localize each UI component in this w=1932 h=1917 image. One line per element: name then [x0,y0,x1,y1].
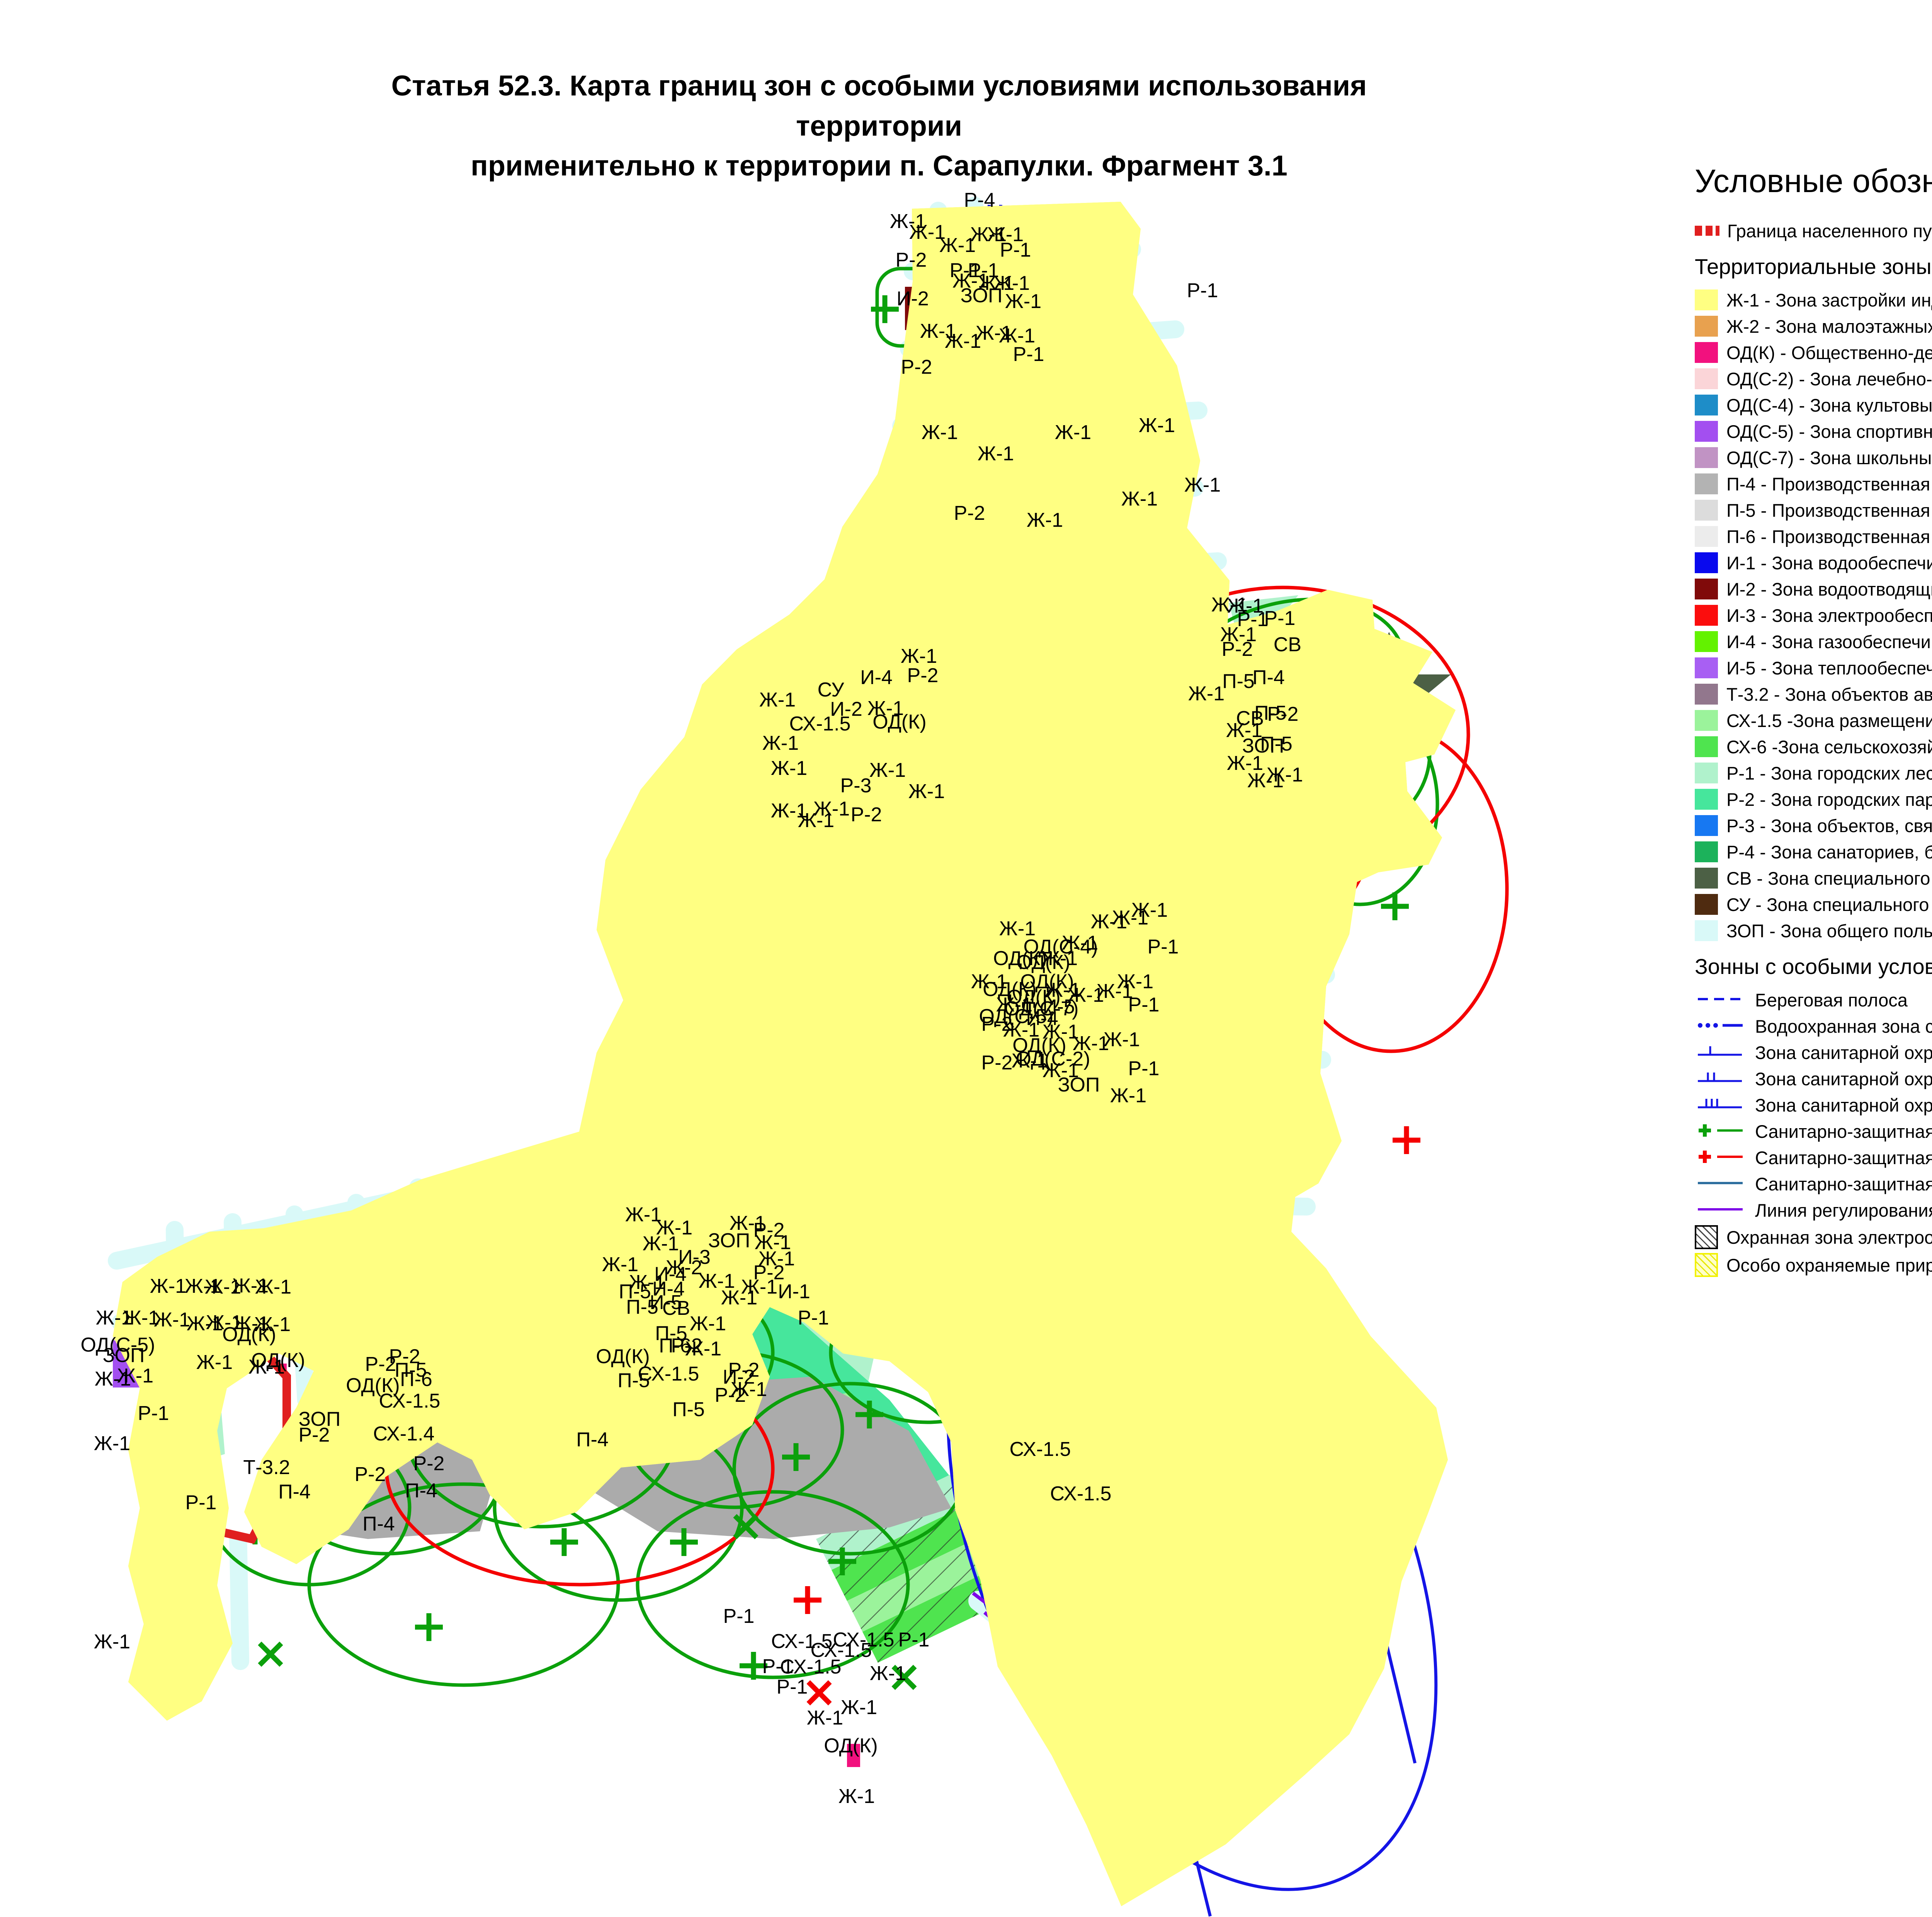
legend-item-label: Линия регулирования застройки [1755,1200,1932,1221]
legend-item-zone-СХ-1.5: СХ-1.5 -Зона размещения сельскохозяйстве… [1695,707,1932,734]
map-zone-label: Ж-1 [1247,770,1284,792]
legend-item-label: П-5 - Производственная зона V класса опа… [1726,500,1932,521]
map-zone-label: Ж-1 [690,1313,726,1335]
legend-item-special-line: Линия регулирования застройки [1695,1197,1932,1223]
map-zone-label: Ж-1 [94,1432,130,1455]
zone-color-swatch [1695,868,1718,889]
legend-item-zone-П-4: П-4 - Производственная зона IV класса оп… [1695,471,1932,497]
legend-item-label: ОД(С-7) - Зона школьных, дошкольных учеб… [1726,447,1932,468]
legend-special-line-list: Береговая полосаВодоохранная зона совмещ… [1695,987,1932,1223]
map-zone-label: СХ-1.5 [379,1390,440,1412]
legend-item-zone-Р-3: Р-3 - Зона объектов, связанных с использ… [1695,812,1932,839]
line-style-swatch [1695,1200,1753,1220]
line-style-swatch [1695,1069,1753,1089]
legend-item-zone-И-5: И-5 - Зона теплообеспечивающих объектов … [1695,655,1932,681]
line-style-swatch [1695,1174,1753,1194]
map-zone-label: П-5 [617,1369,650,1392]
map-zone-label: П-5 [1260,733,1293,755]
map-zone-label: Ж-1 [759,689,796,711]
legend-item-label: Р-3 - Зона объектов, связанных с использ… [1726,815,1932,836]
map-zone-label: ЗОП [103,1344,145,1367]
zone-color-swatch [1695,447,1718,468]
legend-item-label: ОД(С-5) - Зона спортивных комплексов [1726,421,1932,442]
legend-item-zone-Ж-2: Ж-2 - Зона малоэтажных многоквартирных ж… [1695,313,1932,339]
legend-item-special-line: Береговая полоса [1695,987,1932,1013]
map-zone-label: Ж-1 [721,1287,757,1309]
map-zone-label: И-2 [896,288,929,310]
map-zone-label: Р-2 [715,1384,746,1406]
legend-item-label: И-4 - Зона газообеспечивающих объектов и… [1726,631,1932,652]
map-zone-label: Ж-1 [1139,414,1175,437]
line-style-swatch [1695,1095,1753,1115]
map-zone-label: Р-1 [138,1402,169,1425]
map-zone-label: П-4 [405,1479,437,1502]
legend-item-label: Р-1 - Зона городских лесов, лесопарков, … [1726,763,1932,784]
legend-item-zone-ОД(К): ОД(К) - Общественно-деловая зона (компле… [1695,339,1932,366]
legend-item-zone-ОД(С-7): ОД(С-7) - Зона школьных, дошкольных учеб… [1695,444,1932,471]
legend-item-label: ОД(С-4) - Зона культовых религиозных ком… [1726,395,1932,416]
map-zone-label: ОД(К) [596,1345,650,1368]
map-zone-label: Р-1 [1187,279,1218,302]
map-zone-label: Р-1 [723,1605,755,1628]
zone-color-swatch [1695,316,1718,337]
zone-color-swatch [1695,395,1718,415]
legend-item-label: И-3 - Зона электрообеспечивающих объекто… [1726,605,1932,626]
map-zone-label: ЗОП [961,284,1003,307]
map-zone-label: Р-2 [981,1052,1013,1074]
legend-item-label: Зона санитарной охраны II пояса подземны… [1755,1068,1932,1090]
map-zone-label: Р-4 [964,189,995,211]
legend-item-label: Водоохранная зона совмещенная с прибрежн… [1755,1016,1932,1037]
zone-color-swatch [1695,421,1718,442]
legend-item-zone-Р-4: Р-4 - Зона санаториев, баз отдыха, лагер… [1695,839,1932,865]
map-zone-label: ОД(К) [824,1735,878,1757]
area-style-swatch [1695,1253,1718,1277]
map-zone-label: Т-3.2 [243,1456,290,1479]
legend-item-label: П-4 - Производственная зона IV класса оп… [1726,473,1932,495]
legend-item-zone-СВ: СВ - Зона специального назначения (ведом… [1695,865,1932,891]
map-zone-label: П-6 [400,1368,432,1391]
legend-item-label: Санитарно-защитная полоса водоводов [1755,1173,1932,1195]
map-zone-label: ОД(К) [251,1349,305,1372]
zone-color-swatch [1695,289,1718,310]
legend-item-label: Р-2 - Зона городских парков, скверов, са… [1726,789,1932,810]
zone-color-swatch [1695,657,1718,678]
legend-item-zone-Р-2: Р-2 - Зона городских парков, скверов, са… [1695,786,1932,812]
map-zone-label: Ж-1 [1104,1028,1140,1051]
legend-item-zone-ЗОП: ЗОП - Зона общего пользования [1695,918,1932,944]
map-zone-label: Р-1 [762,1655,794,1678]
legend-item-label: П-6 - Производственная зона, не требующа… [1726,526,1932,547]
zone-color-swatch [1695,368,1718,389]
map-zone-label: Р-2 [299,1424,330,1446]
map-zone-label: П-5 [1222,670,1255,693]
map-zone-label: Ж-1 [771,757,807,780]
legend-item-label: Р-4 - Зона санаториев, баз отдыха, лагер… [1726,841,1932,863]
map-zone-label: И-4 [860,666,893,689]
legend-item-zone-Ж-1: Ж-1 - Зона застройки индивидуальными жил… [1695,287,1932,313]
zone-color-swatch [1695,920,1718,941]
map-zone-label: Ж-1 [150,1275,186,1297]
zone-color-swatch [1695,815,1718,836]
map-zone-label: Р-2 [907,664,939,687]
zone-color-swatch [1695,605,1718,626]
zone-color-swatch [1695,342,1718,363]
legend-item-label: СХ-1.5 -Зона размещения сельскохозяйстве… [1726,710,1932,731]
legend-item-label: СВ - Зона специального назначения (ведом… [1726,868,1932,889]
legend-item-label: ОД(К) - Общественно-деловая зона (компле… [1726,342,1932,363]
legend-special-header: Зонны с особыми условиями использования … [1695,954,1932,979]
legend-item-special-area: Особо охраняемые природные территории [1695,1251,1932,1279]
legend-item-zone-Р-1: Р-1 - Зона городских лесов, лесопарков, … [1695,760,1932,786]
map-zone-label: П-4 [362,1513,395,1535]
map-zone-label: Р-2 [413,1452,445,1475]
legend-item-special-line: Зона санитарной охраны III пояса подземн… [1695,1092,1932,1118]
map-zone-label: П-5 [626,1296,658,1318]
map-zone-label: ОД(К) [872,711,926,733]
map-zone-label: Ж-1 [1184,474,1221,496]
map-canvas: Ж-1Ж-1Р-4Ж-1Ж-1Ж-1Р-1Р-2Р-1Р-1Ж-1Ж-1Ж-1З… [0,0,1932,1917]
legend-item-label: И-1 - Зона водообеспечивающих объектов и… [1726,552,1932,574]
legend-zone-list: Ж-1 - Зона застройки индивидуальными жил… [1695,287,1932,944]
legend-item-zone-П-5: П-5 - Производственная зона V класса опа… [1695,497,1932,523]
map-zone-label: Ж-1 [94,1631,130,1653]
line-style-swatch [1695,1148,1753,1168]
zone-color-swatch [1695,526,1718,547]
legend-item-label: И-2 - Зона водоотводящих объектов инжене… [1726,579,1932,600]
legend-special-area-list: Охранная зона электрообеспечивающих объе… [1695,1223,1932,1279]
area-style-swatch [1695,1225,1718,1249]
map-zone-label: Р-2 [901,356,932,378]
map-zone-label: Р-1 [1013,343,1044,366]
map-zone-label: Ж-1 [1121,488,1158,510]
legend-item-label: ЗОП - Зона общего пользования [1726,920,1932,941]
line-style-swatch [1695,990,1753,1010]
map-zone-label: Ж-1 [807,1707,843,1729]
map-zone-label: Р-1 [898,1629,930,1651]
legend-item-zone-И-1: И-1 - Зона водообеспечивающих объектов и… [1695,550,1932,576]
map-zone-label: Р-1 [1264,607,1296,630]
legend-item-zone-И-3: И-3 - Зона электрообеспечивающих объекто… [1695,602,1932,628]
map-zone-label: Ж-1 [1041,947,1078,970]
zone-color-swatch [1695,500,1718,521]
legend-item-label: ОД(С-2) - Зона лечебно-оздоровительных к… [1726,368,1932,390]
legend-item-zone-Т-3.2: Т-3.2 - Зона объектов автомобильного тра… [1695,681,1932,707]
zone-color-swatch [1695,894,1718,915]
legend-item-special-area: Охранная зона электрообеспечивающих объе… [1695,1223,1932,1251]
legend-item-special-line: Зона санитарной охраны I пояса подземных… [1695,1039,1932,1066]
map-zone-label: Ж-1 [908,780,945,803]
map-zone-label: Р-2 [1267,703,1299,725]
map-zone-label: Ж-1 [255,1276,291,1298]
legend-item-label: Особо охраняемые природные территории [1726,1255,1932,1276]
zone-color-swatch [1695,631,1718,652]
map-zone-label: Р-2 [954,502,985,524]
map-zone-label: Р-1 [777,1676,808,1698]
map-zone-label: Р-2 [355,1463,386,1486]
zoning-map: Ж-1Ж-1Р-4Ж-1Ж-1Ж-1Р-1Р-2Р-1Р-1Ж-1Ж-1Ж-1З… [0,0,1932,1917]
map-zone-label: И-1 [778,1280,810,1303]
legend-item-zone-ОД(С-5): ОД(С-5) - Зона спортивных комплексов [1695,418,1932,444]
legend-item-zone-СУ: СУ - Зона специального назначения (утили… [1695,891,1932,918]
map-zone-label: ОД(К) [222,1323,276,1346]
map-zone-label: Ж-1 [798,809,834,832]
legend-item-zone-П-6: П-6 - Производственная зона, не требующа… [1695,523,1932,550]
map-zone-label: Ж-1 [841,1696,877,1719]
map-zone-label: Ж-1 [1055,421,1091,444]
map-zone-label: Ж-1 [838,1785,875,1808]
map-zone-label: Р-1 [1128,994,1160,1016]
legend-item-special-line: Санитарно-защитная зона ликвидируемая [1695,1144,1932,1171]
zone-color-swatch [1695,552,1718,573]
legend-item-special-line: Санитарно-защитная полоса водоводов [1695,1171,1932,1197]
page: { "title": { "line1": "Статья 52.3. Карт… [0,0,1932,1917]
legend-item-label: СХ-6 -Зона сельскохозяйственного использ… [1726,736,1932,758]
map-zone-label: СВ [1274,633,1301,656]
boundary-line-swatch [1695,226,1719,236]
map-zone-label: ЗОП [1058,1074,1100,1096]
legend-item-label: Санитарно-защитная зона ликвидируемая [1755,1147,1932,1168]
map-zone-label: Ж-1 [154,1309,190,1331]
map-zone-label: Ж-1 [869,759,906,781]
map-zone-label: П-4 [1252,666,1285,689]
map-zone-label: СХ-1.4 [373,1423,435,1445]
legend-item-label: Граница населенного пункта [1727,220,1932,242]
legend-item-zone-ОД(С-4): ОД(С-4) - Зона культовых религиозных ком… [1695,392,1932,418]
map-zone-label: Ж-1 [1005,290,1041,313]
map-zone-label: СХ-1.5 [1010,1438,1071,1461]
map-zone-label: Ж-1 [643,1233,679,1255]
page-title-line1: Статья 52.3. Карта границ зон с особыми … [348,66,1410,146]
map-zone-label: Ж-1 [978,443,1014,465]
line-style-swatch [1695,1043,1753,1062]
page-title-line2: применительно к территории п. Сарапулки.… [348,146,1410,186]
map-zone-label: Р-1 [798,1307,829,1329]
legend-item-special-line: Водоохранная зона совмещенная с прибрежн… [1695,1013,1932,1039]
legend-item-zone-И-4: И-4 - Зона газообеспечивающих объектов и… [1695,628,1932,655]
map-zone-label: Р-2 [896,249,927,271]
map-zone-label: Ж-1 [870,1662,906,1685]
line-style-swatch [1695,1016,1753,1036]
map-zone-label: Ж-1 [117,1365,153,1387]
legend-item-label: СУ - Зона специального назначения (утили… [1726,894,1932,915]
legend-item-label: Охранная зона электрообеспечивающих объе… [1726,1227,1932,1248]
legend-title: Условные обозначения [1695,162,1932,200]
legend-item-special-line: Санитарно-защитная зона ориентировочная [1695,1118,1932,1144]
map-zone-label: Р-3 [840,775,872,797]
legend: Условные обозначения Граница населенного… [1695,162,1932,1279]
legend-item-zone-ОД(С-2): ОД(С-2) - Зона лечебно-оздоровительных к… [1695,366,1932,392]
map-zone-label: П-4 [576,1428,609,1451]
line-style-swatch [1695,1122,1753,1141]
zone-color-swatch [1695,736,1718,757]
map-zone-label: Ж-1 [1188,683,1225,705]
zone-color-swatch [1695,684,1718,705]
map-zone-label: Ж-1 [1027,509,1063,531]
map-zone-label: П-4 [278,1481,311,1503]
legend-item-label: Санитарно-защитная зона ориентировочная [1755,1121,1932,1142]
legend-zones-header: Территориальные зоны [1695,254,1932,279]
map-zone-label: Ж-1 [1131,899,1168,921]
legend-item-boundary: Граница населенного пункта [1695,218,1932,244]
legend-item-label: Береговая полоса [1755,989,1908,1011]
page-title: Статья 52.3. Карта границ зон с особыми … [348,66,1410,186]
map-zone-label: Ж-1 [922,421,958,444]
map-zone-label: П-5 [672,1398,705,1421]
legend-item-special-line: Зона санитарной охраны II пояса подземны… [1695,1066,1932,1092]
zone-color-swatch [1695,763,1718,783]
legend-item-label: И-5 - Зона теплообеспечивающих объектов … [1726,657,1932,679]
map-zone-label: СХ-1.5 [1050,1483,1112,1505]
map-zone-label: Р-1 [185,1491,217,1514]
zone-color-swatch [1695,841,1718,862]
map-zone-label: Ж-1 [1117,970,1153,993]
legend-item-label: Ж-1 - Зона застройки индивидуальными жил… [1726,289,1932,311]
zone-color-swatch [1695,579,1718,599]
map-zone-label: Р-2 [851,804,882,826]
legend-item-label: Ж-2 - Зона малоэтажных многоквартирных ж… [1726,316,1932,337]
map-zone-label: Р-1 [1000,239,1031,261]
map-zone-label: СВ [662,1297,690,1319]
map-zone-label: Ж-1 [1110,1084,1146,1107]
map-zone-label: Р-1 [1148,936,1179,958]
legend-item-label: Зона санитарной охраны III пояса подземн… [1755,1095,1932,1116]
legend-item-label: Т-3.2 - Зона объектов автомобильного тра… [1726,684,1932,705]
zone-color-swatch [1695,789,1718,810]
map-zone-label: Ж-1 [196,1351,233,1374]
zone-color-swatch [1695,710,1718,731]
map-zone-label: Р-2 [671,1335,702,1357]
map-zone-label: Ж-1 [762,732,799,754]
map-zone-label: Р-1 [1128,1057,1160,1080]
map-zone-label: Р-2 [1222,638,1253,661]
legend-item-label: Зона санитарной охраны I пояса подземных… [1755,1042,1932,1063]
legend-item-zone-СХ-6: СХ-6 -Зона сельскохозяйственного использ… [1695,734,1932,760]
zone-color-swatch [1695,473,1718,494]
legend-item-zone-И-2: И-2 - Зона водоотводящих объектов инжене… [1695,576,1932,602]
